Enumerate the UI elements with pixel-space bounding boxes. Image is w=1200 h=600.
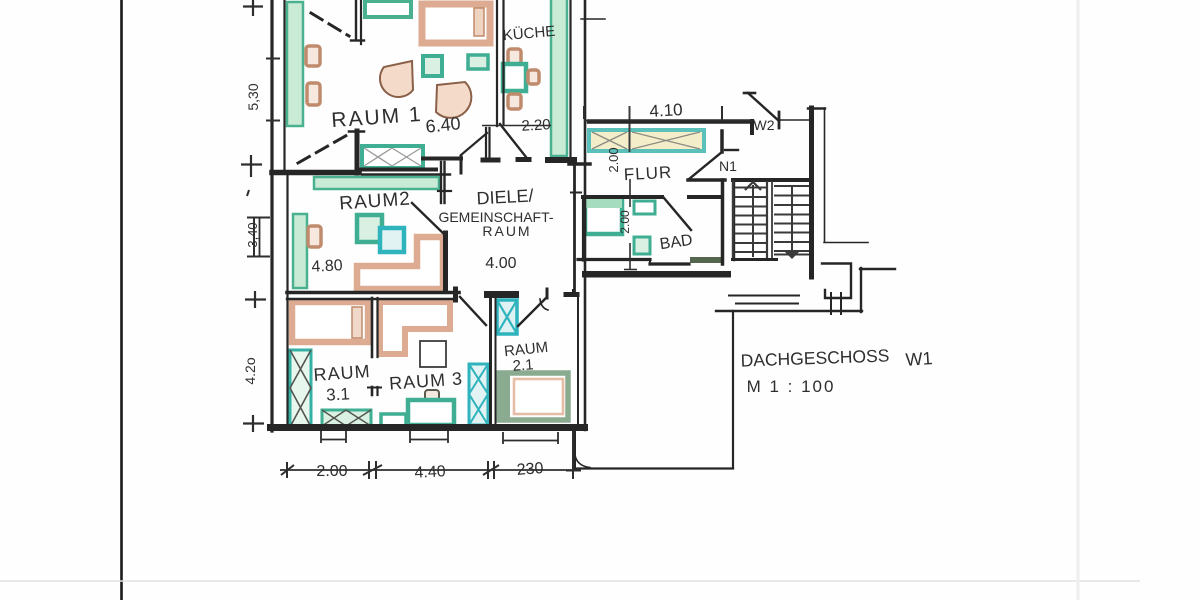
svg-text:2.00: 2.00 [606, 147, 621, 172]
svg-text:W1: W1 [905, 348, 933, 370]
svg-text:4.80: 4.80 [311, 257, 343, 276]
svg-text:4.2o: 4.2o [242, 357, 258, 384]
svg-text:2.1: 2.1 [512, 356, 534, 374]
svg-text:M 1 : 100: M 1 : 100 [747, 377, 836, 396]
svg-text:W2: W2 [754, 117, 775, 133]
svg-text:4.10: 4.10 [649, 100, 683, 121]
svg-text:6.40: 6.40 [425, 113, 462, 137]
svg-text:5,30: 5,30 [245, 83, 261, 110]
svg-text:2.00: 2.00 [618, 210, 632, 234]
svg-text:DIELE/: DIELE/ [476, 186, 534, 209]
svg-text:N1: N1 [719, 158, 737, 174]
svg-text:RAUM: RAUM [313, 361, 371, 385]
svg-text:2.00: 2.00 [316, 463, 347, 480]
svg-text:230: 230 [516, 460, 544, 479]
svg-text:4.00: 4.00 [485, 255, 516, 272]
svg-text:2.20: 2.20 [521, 116, 551, 135]
svg-text:3.1: 3.1 [326, 384, 351, 404]
svg-text:4.40: 4.40 [414, 463, 446, 482]
svg-text:FLUR: FLUR [623, 163, 672, 185]
svg-text:RAUM: RAUM [482, 223, 531, 239]
svg-text:3,40: 3,40 [245, 222, 260, 247]
